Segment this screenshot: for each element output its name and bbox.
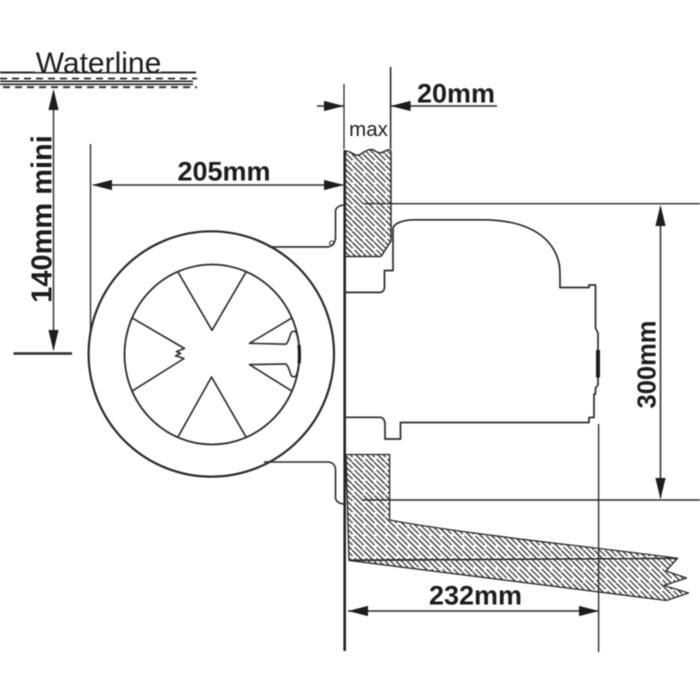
svg-text:232mm: 232mm <box>429 581 522 611</box>
svg-text:205mm: 205mm <box>177 157 270 187</box>
svg-text:20mm: 20mm <box>417 79 495 109</box>
svg-text:140mm mini: 140mm mini <box>27 135 59 303</box>
svg-text:300mm: 300mm <box>634 321 662 409</box>
svg-text:Waterline: Waterline <box>36 47 162 80</box>
svg-text:max: max <box>349 118 388 141</box>
